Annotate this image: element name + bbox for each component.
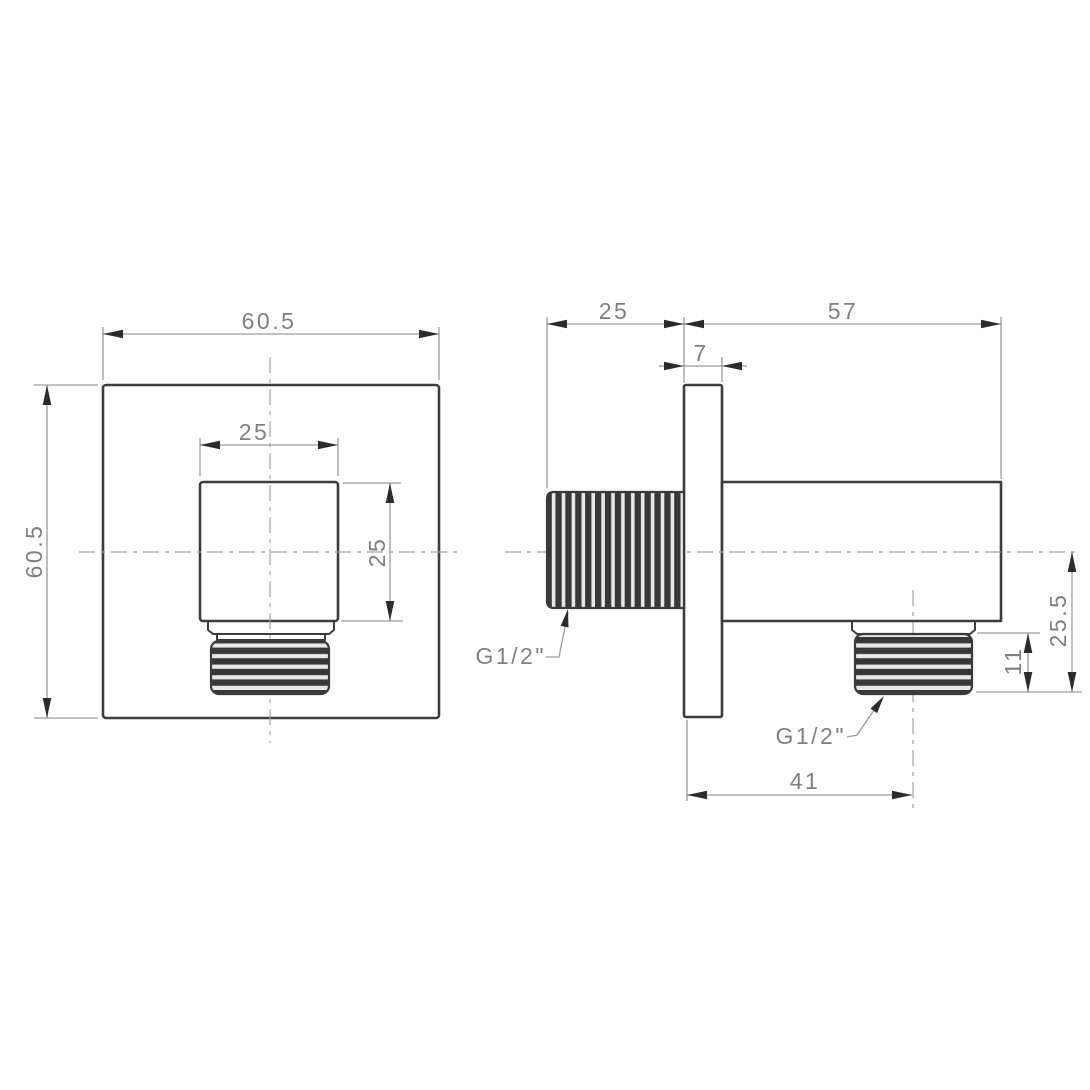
arrowhead <box>687 791 707 800</box>
arrowhead <box>871 696 885 713</box>
arrowhead <box>561 609 569 628</box>
outlet-thread-spec-label: G1/2" <box>775 723 846 749</box>
arrowhead <box>1068 672 1077 692</box>
front-overall-width-label: 60.5 <box>242 308 297 334</box>
inlet-thread-spec-label: G1/2" <box>475 643 546 669</box>
dim-side-plate-thickness: 7 <box>659 340 747 382</box>
side-outlet-thread-length-label: 11 <box>1000 647 1026 676</box>
side-inlet-thread <box>547 492 684 608</box>
arrowhead <box>419 330 439 339</box>
inlet-thread-callout: G1/2" <box>475 609 568 669</box>
side-wall-plate-outline <box>684 385 722 717</box>
arrowhead <box>43 698 52 718</box>
technical-drawing: 60.5 60.5 25 25 25 57 <box>0 0 1090 1090</box>
side-inlet-length-label: 25 <box>599 298 630 324</box>
arrowhead <box>892 791 912 800</box>
arrowhead <box>43 385 52 405</box>
arrowhead <box>1068 552 1077 572</box>
arrowhead <box>547 320 567 329</box>
side-outlet-offset-label: 41 <box>790 768 821 794</box>
front-boss-height-label: 25 <box>364 537 390 568</box>
side-outlet-drop-label: 25.5 <box>1045 593 1071 648</box>
arrowhead <box>664 362 684 371</box>
arrowhead <box>664 320 684 329</box>
arrowhead <box>722 362 742 371</box>
arrowhead <box>684 320 704 329</box>
dim-side-outlet-thread-length: 11 <box>977 633 1040 692</box>
front-boss-width-label: 25 <box>239 419 270 445</box>
front-overall-height-label: 60.5 <box>21 524 47 579</box>
technical-drawing-canvas: 60.5 60.5 25 25 25 57 <box>0 0 1090 1090</box>
side-plate-thickness-label: 7 <box>693 340 708 366</box>
dim-front-overall-width: 60.5 <box>103 308 439 380</box>
arrowhead <box>103 330 123 339</box>
arrowhead <box>981 320 1001 329</box>
front-outlet-thread <box>211 641 329 694</box>
side-outlet-thread <box>855 634 972 694</box>
side-body-length-label: 57 <box>828 298 859 324</box>
outlet-thread-callout: G1/2" <box>775 696 884 749</box>
dim-side-body-length: 57 <box>684 298 1001 479</box>
dim-side-inlet-length: 25 <box>547 298 684 488</box>
